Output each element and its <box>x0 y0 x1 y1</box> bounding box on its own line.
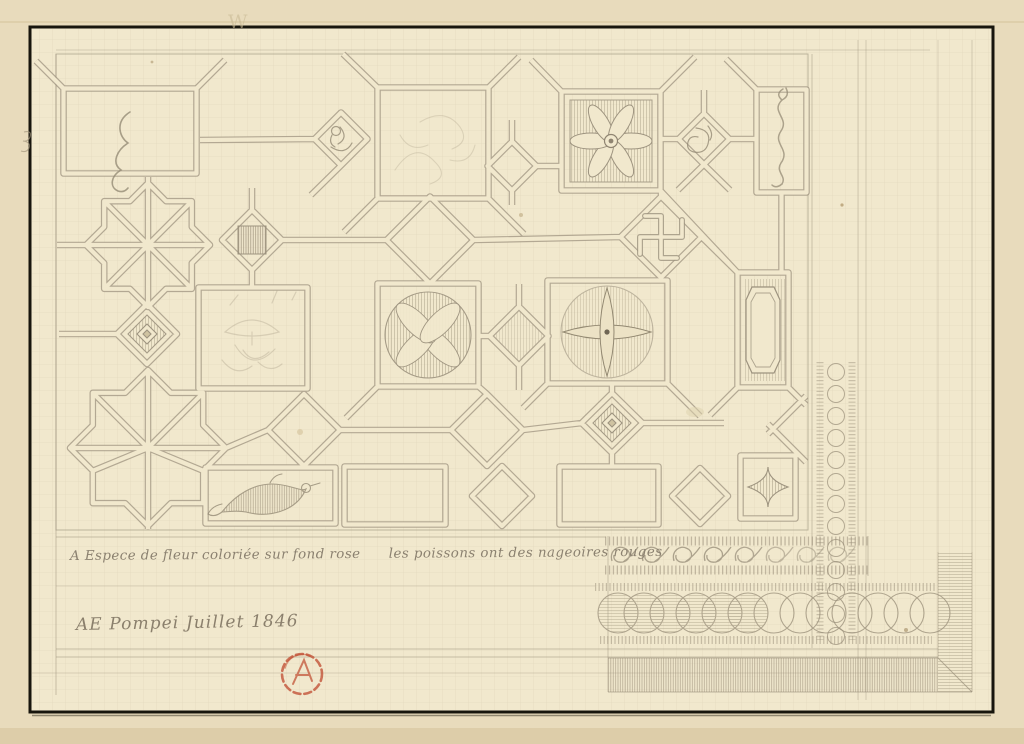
scanned-drawing: A Espece de fleur coloriée sur fond rose… <box>0 0 1024 744</box>
quatrefoil-motif <box>385 292 471 378</box>
cross-in-circle-motif <box>561 286 653 378</box>
drawing-canvas: A Espece de fleur coloriée sur fond rose… <box>0 0 1024 744</box>
striped-square-motif <box>238 226 266 254</box>
mount-shadow <box>0 728 1024 744</box>
octagon-panel-motif <box>744 279 786 381</box>
watermark-monogram: W <box>228 11 250 33</box>
signature-date: AE Pompei Juillet 1846 <box>74 611 299 635</box>
rosette-motif <box>570 100 652 182</box>
